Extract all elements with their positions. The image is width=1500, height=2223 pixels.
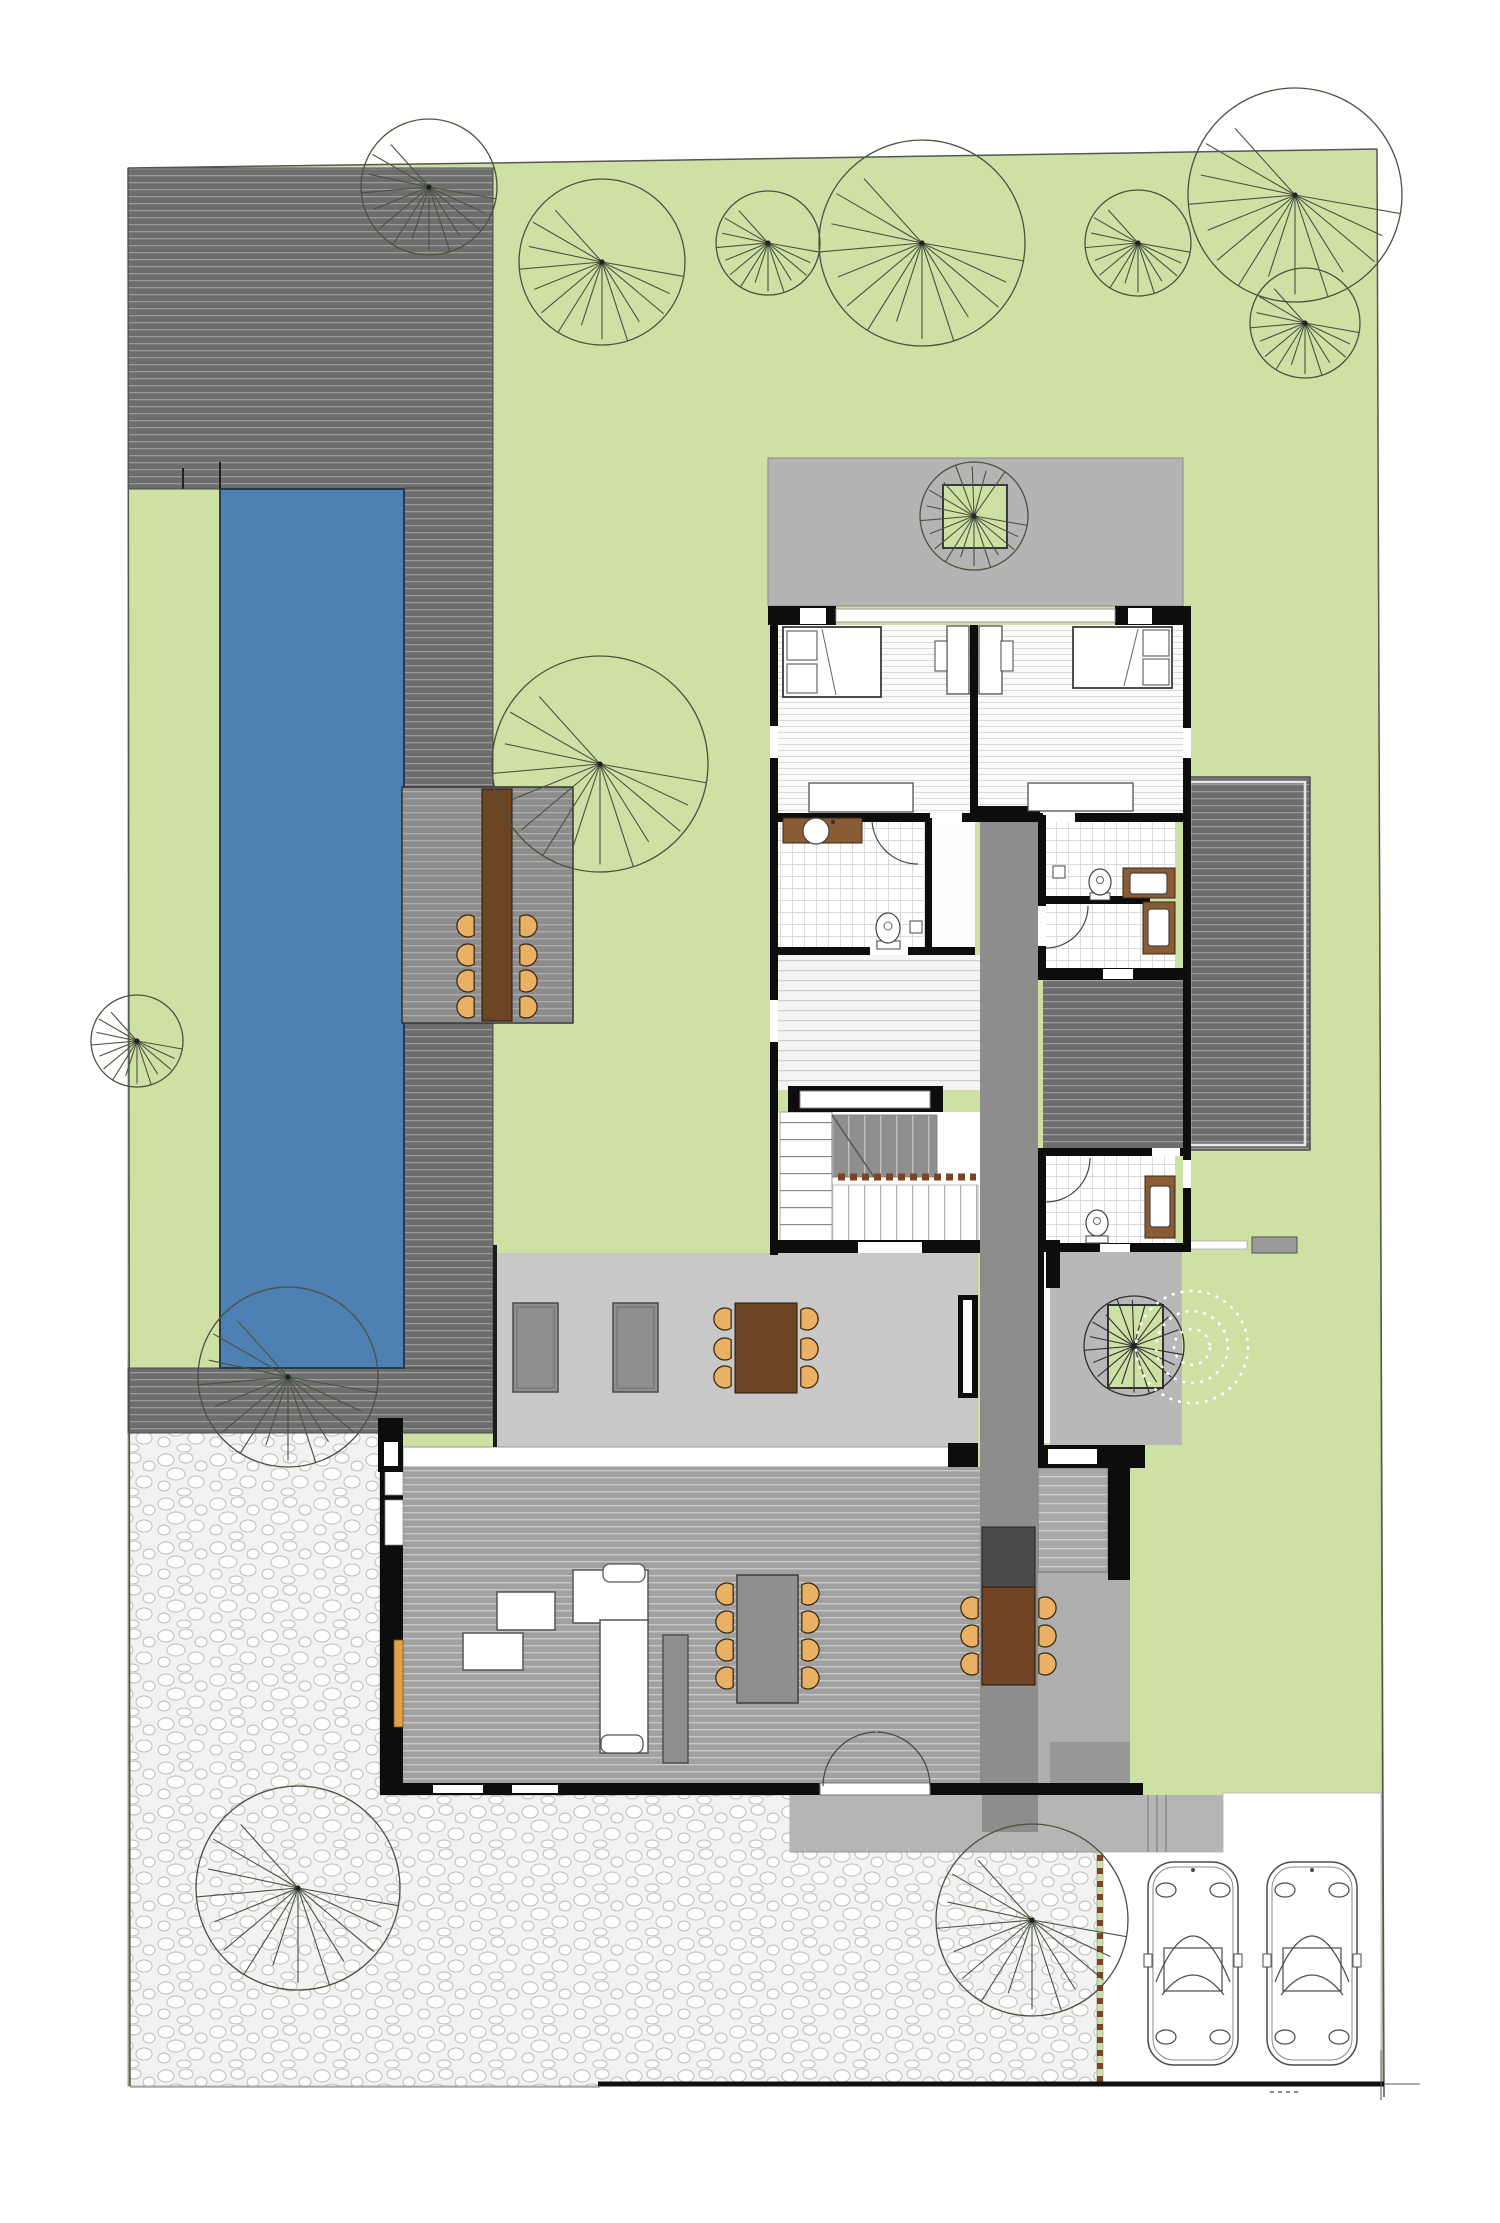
ac-unit (1252, 1237, 1297, 1253)
car-2-antenna (1310, 1868, 1314, 1872)
closet-left (930, 818, 975, 947)
shower-mixer-right (1053, 866, 1065, 878)
swimming-pool (220, 489, 404, 1368)
coffee-table-1 (497, 1592, 555, 1630)
courtyard-chairs-west-1 (961, 1625, 978, 1647)
breezeway-store (982, 1527, 1035, 1587)
tree-garden-middle-trunk (597, 761, 602, 766)
deck-pool-south (128, 1368, 493, 1433)
window-powder-north (1152, 1148, 1180, 1156)
fence-dots-11 (1097, 1998, 1103, 2004)
tree-7-trunk (1302, 320, 1307, 325)
wall-bed-center (970, 625, 978, 815)
dining-chairs-west-3 (716, 1667, 733, 1689)
roof-planter-tree-trunk (971, 513, 976, 518)
outdoor-chairs-east-1 (520, 944, 537, 966)
tree-5-trunk (1135, 240, 1140, 245)
dresser-right (1028, 783, 1133, 811)
glass-wall-band (403, 1447, 960, 1467)
tree-4-trunk (919, 240, 924, 245)
desk-chair-right (1001, 641, 1013, 671)
fence-dots-2 (1097, 1881, 1103, 1887)
window-powder-east (1183, 1160, 1191, 1188)
window-bed-north (836, 609, 1115, 622)
sink-bath-left (803, 818, 829, 844)
courtyard-table (982, 1587, 1035, 1685)
ac-pad (1185, 1241, 1247, 1249)
shower-mixer-left (910, 921, 922, 933)
door-terrace-north (858, 1242, 922, 1253)
sink-bath-right-bottom (1148, 909, 1169, 946)
fence-dots-1 (1097, 1868, 1103, 1874)
sink-powder (1150, 1186, 1170, 1227)
window-living-south-2 (512, 1785, 558, 1793)
bed-right-pillow-2 (1143, 659, 1169, 685)
car-1-antenna (1191, 1868, 1195, 1872)
dining-chairs-east-1 (802, 1611, 819, 1633)
dining-chairs-west-1 (716, 1611, 733, 1633)
tree-1-trunk (426, 184, 431, 189)
window-living-south-1 (433, 1785, 483, 1793)
site-plan (0, 0, 1500, 2223)
chimney-flue (384, 1442, 398, 1466)
fence-dots-6 (1097, 1933, 1103, 1939)
outdoor-chairs-east-3 (520, 996, 537, 1018)
courtyard-chairs-west-0 (961, 1597, 978, 1619)
door-bed-left-south (930, 813, 962, 822)
wall-entry-court-west-top (1046, 1240, 1060, 1288)
bed-left-pillow-1 (787, 631, 817, 660)
wall-bed-north-east (1115, 606, 1191, 625)
entry-walk-dark-patch (1050, 1742, 1130, 1785)
dining-chairs-west-2 (716, 1639, 733, 1661)
car-1-roof (1164, 1948, 1222, 1991)
sofa-armrest-2 (601, 1735, 643, 1753)
courtyard-chairs-east-0 (1039, 1597, 1056, 1619)
door-bath-right-south (1103, 969, 1133, 979)
tv-sideboard (663, 1635, 688, 1763)
outdoor-chairs-west-0 (457, 915, 474, 937)
dining-table (737, 1575, 798, 1703)
sofa-armrest-1 (603, 1564, 645, 1582)
terrace-chairs-east-0 (801, 1308, 818, 1330)
fence-dots-4 (1097, 1907, 1103, 1913)
outdoor-table-long (482, 789, 512, 1021)
car-2-light-0 (1275, 1883, 1295, 1897)
stair-landing (832, 1115, 937, 1177)
outdoor-chairs-west-2 (457, 970, 474, 992)
dining-chairs-west-0 (716, 1583, 733, 1605)
window-bed-west (770, 726, 778, 758)
toilet-powder-tank (1086, 1236, 1108, 1243)
car-1-mirror-left (1144, 1954, 1152, 1967)
courtyard-chairs-west-2 (961, 1653, 978, 1675)
courtyard-chairs-east-2 (1039, 1653, 1056, 1675)
tree-9-trunk (134, 1038, 139, 1043)
car-2-mirror-left (1263, 1954, 1271, 1967)
hall-floor (778, 955, 980, 1090)
toilet-powder-bowl (1086, 1210, 1108, 1236)
tree-2-trunk (599, 259, 604, 264)
inner-court-deck (1043, 980, 1183, 1148)
car-2-mirror-right (1353, 1954, 1361, 1967)
window-living-west-1 (385, 1468, 403, 1495)
desk-left (947, 626, 969, 694)
wall-terrace-west (493, 1245, 497, 1447)
desk-right (979, 626, 1002, 694)
wall-bath-right-west (1038, 815, 1046, 980)
desk-chair-left (935, 641, 947, 671)
fence-dots-16 (1097, 2063, 1103, 2069)
toilet-right-bowl (1089, 869, 1111, 895)
car-1-mirror-right (1234, 1954, 1242, 1967)
wall-living-south (380, 1783, 1143, 1795)
fence-dots-14 (1097, 2037, 1103, 2043)
car-2-roof (1283, 1948, 1341, 1991)
outdoor-chairs-west-1 (457, 944, 474, 966)
window-living-west-wood (394, 1640, 403, 1727)
wall-powder-west (1038, 1148, 1046, 1252)
door-court-south (1048, 1449, 1097, 1464)
dining-chairs-east-3 (802, 1667, 819, 1689)
dining-chairs-east-0 (802, 1583, 819, 1605)
window-terrace-east (963, 1300, 972, 1393)
car-1-light-1 (1210, 1883, 1230, 1897)
wall-living-west (380, 1443, 403, 1795)
tree-gravel-1-trunk (285, 1374, 290, 1379)
dresser-left (809, 783, 913, 812)
courtyard-chairs-east-1 (1039, 1625, 1056, 1647)
fence-dots-5 (1097, 1920, 1103, 1926)
fence-dots-15 (1097, 2050, 1103, 2056)
fence-dots-0 (1097, 1855, 1103, 1861)
entry-steps (1038, 1468, 1108, 1572)
sofa-chaise (600, 1620, 648, 1753)
door-bath-right-west (1038, 906, 1046, 946)
entry-planter-tree-trunk (1131, 1343, 1136, 1348)
car-2-light-3 (1329, 2030, 1349, 2044)
east-deck (1185, 777, 1310, 1150)
living-floor (403, 1467, 980, 1787)
coffee-table-2 (463, 1633, 523, 1670)
window-hall-west (770, 1000, 778, 1042)
outdoor-chairs-east-2 (520, 970, 537, 992)
wall-bath-left-east (925, 818, 932, 947)
window-bed-east (1183, 728, 1191, 758)
fence-dots-12 (1097, 2011, 1103, 2017)
stair-flight-west (780, 1112, 832, 1245)
car-2-light-2 (1275, 2030, 1295, 2044)
car-2-light-1 (1329, 1883, 1349, 1897)
wall-corridor-east-entry (1038, 1252, 1044, 1468)
window-stair-north (800, 1091, 930, 1108)
fence-dots-8 (1097, 1959, 1103, 1965)
terrace-table (735, 1303, 797, 1393)
tree-3-trunk (765, 240, 770, 245)
entry-steps-wall (1108, 1468, 1130, 1580)
wall-bed-west (770, 606, 778, 1255)
car-1-light-0 (1156, 1883, 1176, 1897)
fence-dots-17 (1097, 2076, 1103, 2082)
car-1-light-2 (1156, 2030, 1176, 2044)
lounger-2 (613, 1303, 658, 1392)
door-living-threshold (820, 1783, 930, 1795)
terrace-chairs-west-2 (714, 1366, 731, 1388)
wall-corner-terrace-se (948, 1443, 978, 1467)
stair-flight-lower (832, 1185, 978, 1245)
outdoor-chairs-west-3 (457, 996, 474, 1018)
terrace-chairs-east-1 (801, 1338, 818, 1360)
door-bed-right-north (1128, 608, 1152, 624)
sink-bath-right-top (1130, 873, 1167, 894)
bed-left-pillow-2 (787, 664, 817, 693)
site-plan-page (0, 0, 1500, 2223)
faucet-bath-left (831, 820, 835, 824)
tree-driveway-trunk (1029, 1917, 1034, 1922)
car-1-light-3 (1210, 2030, 1230, 2044)
outdoor-chairs-east-0 (520, 915, 537, 937)
door-bed-left-north (800, 608, 826, 624)
door-bed-right-south (1043, 813, 1075, 822)
terrace-chairs-west-1 (714, 1338, 731, 1360)
tree-6-trunk (1292, 192, 1297, 197)
door-powder-south (1100, 1244, 1130, 1252)
tree-gravel-2-trunk (295, 1885, 300, 1890)
lounger-1 (513, 1303, 558, 1392)
terrace-chairs-east-2 (801, 1366, 818, 1388)
dining-chairs-east-2 (802, 1639, 819, 1661)
bed-right-pillow-1 (1143, 630, 1169, 656)
toilet-left-bowl (876, 913, 900, 943)
fence-dots-13 (1097, 2024, 1103, 2030)
fence-dots-3 (1097, 1894, 1103, 1900)
window-living-west-2 (385, 1500, 403, 1545)
terrace-chairs-west-0 (714, 1308, 731, 1330)
